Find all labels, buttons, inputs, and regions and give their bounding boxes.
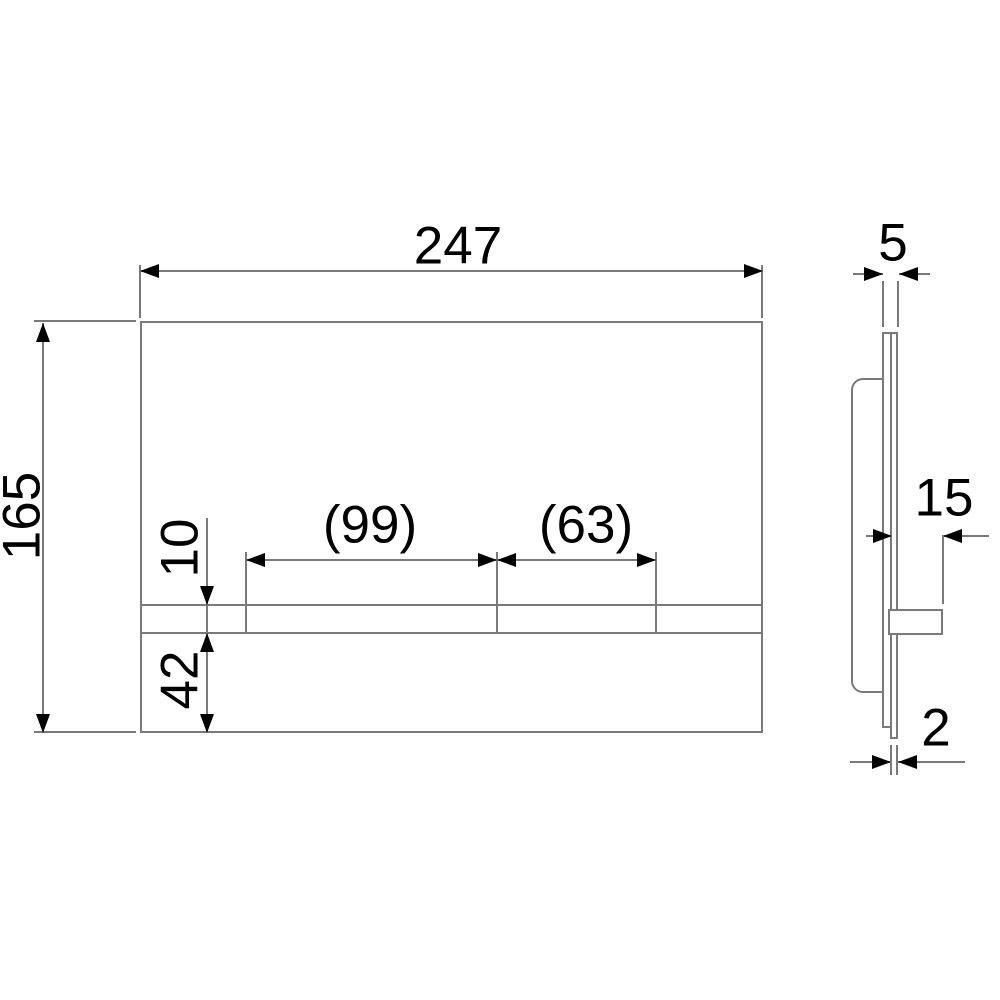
- dim-ext-height-top: [34, 320, 136, 322]
- arrowhead-left-icon: [246, 553, 265, 567]
- arrowhead-left-icon: [898, 755, 917, 769]
- dim-label-protrusion: 15: [915, 472, 974, 525]
- dim-ext-panel-right: [896, 745, 898, 775]
- dim-label-strip-height: 10: [154, 519, 207, 578]
- dim-label-large-button: (99): [323, 499, 417, 552]
- side-plate-top-edge: [882, 332, 898, 334]
- dim-line-large-button: [246, 559, 497, 561]
- arrowhead-left-icon: [140, 264, 159, 278]
- arrowhead-right-icon: [744, 264, 763, 278]
- dim-label-panel-thickness: 2: [921, 702, 950, 755]
- dim-label-width: 247: [414, 220, 502, 273]
- arrowhead-right-icon: [478, 553, 497, 567]
- dim-label-height: 165: [0, 472, 49, 560]
- dim-label-thickness: 5: [878, 217, 907, 270]
- dim-label-bottom-offset: 42: [154, 651, 207, 710]
- arrowhead-left-icon: [497, 553, 516, 567]
- arrowhead-up-icon: [200, 633, 214, 652]
- side-plate-back-bottom-edge: [882, 726, 892, 728]
- dim-line-small-button: [497, 559, 656, 561]
- side-plate-front-line: [896, 333, 898, 739]
- dim-ext-thickness-left: [882, 281, 884, 327]
- front-plate-outline: [140, 321, 763, 733]
- side-button-tab: [888, 609, 943, 635]
- button-strip-bottom-line: [140, 632, 763, 634]
- arrowhead-right-icon: [872, 755, 891, 769]
- button-strip-top-line: [140, 604, 763, 606]
- dim-ext-thickness-right: [897, 281, 899, 327]
- arrowhead-down-icon: [200, 586, 214, 605]
- dim-ext-panel-left: [890, 745, 892, 775]
- dim-ext-protrusion: [942, 535, 944, 604]
- technical-drawing-canvas: 247 165 (99) (63) 10 42: [0, 0, 1000, 1000]
- arrowhead-right-icon: [637, 553, 656, 567]
- arrowhead-up-icon: [36, 323, 50, 342]
- side-glass-bottom-edge: [890, 737, 898, 739]
- arrowhead-down-icon: [36, 714, 50, 733]
- arrowhead-right-icon: [873, 529, 892, 543]
- arrowhead-left-icon: [943, 529, 962, 543]
- arrowhead-down-icon: [200, 714, 214, 733]
- dim-label-small-button: (63): [539, 499, 633, 552]
